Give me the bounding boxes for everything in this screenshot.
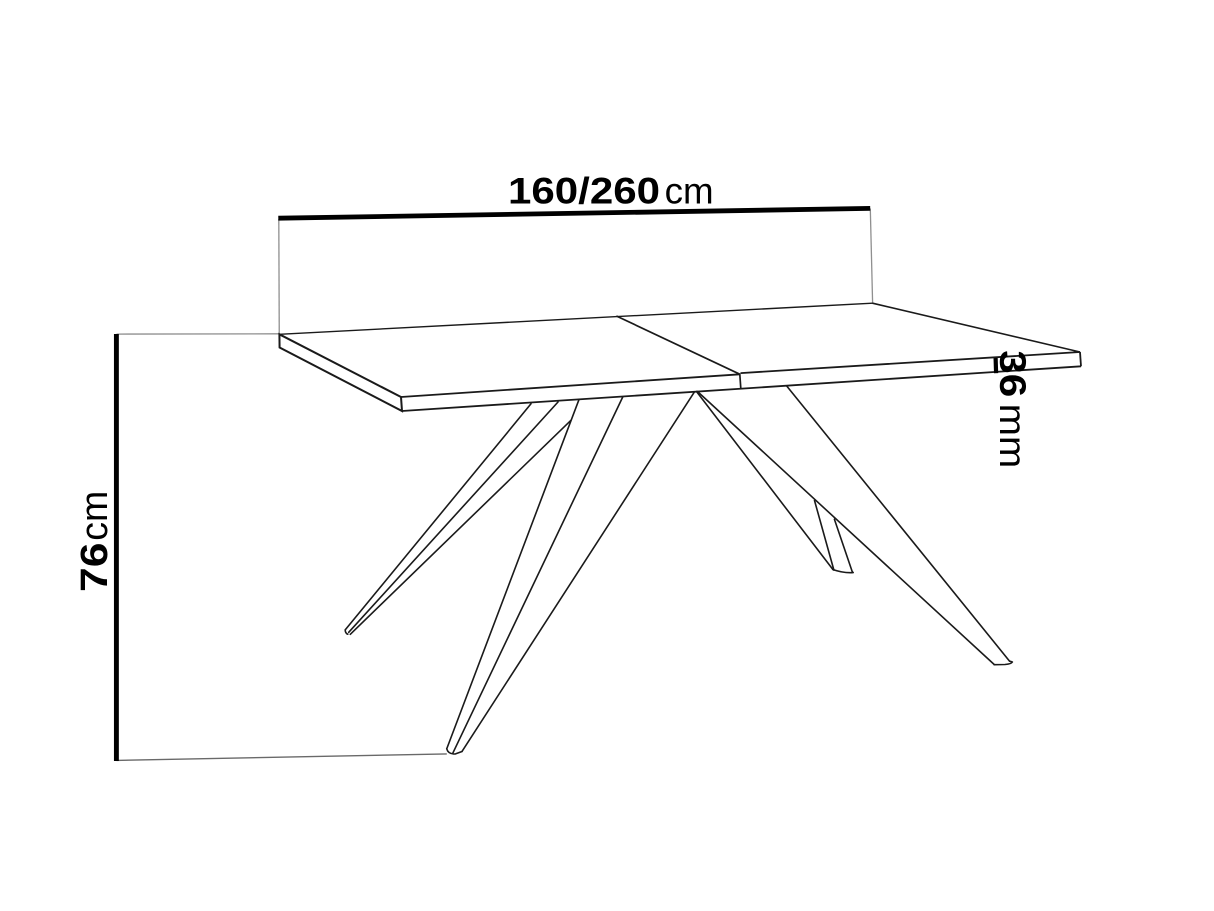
svg-text:160/260: 160/260 [508, 170, 660, 211]
svg-text:76: 76 [74, 543, 116, 593]
svg-text:mm: mm [992, 404, 1034, 468]
svg-text:36: 36 [992, 350, 1034, 397]
svg-text:cm: cm [665, 170, 714, 211]
svg-text:cm: cm [74, 491, 116, 541]
